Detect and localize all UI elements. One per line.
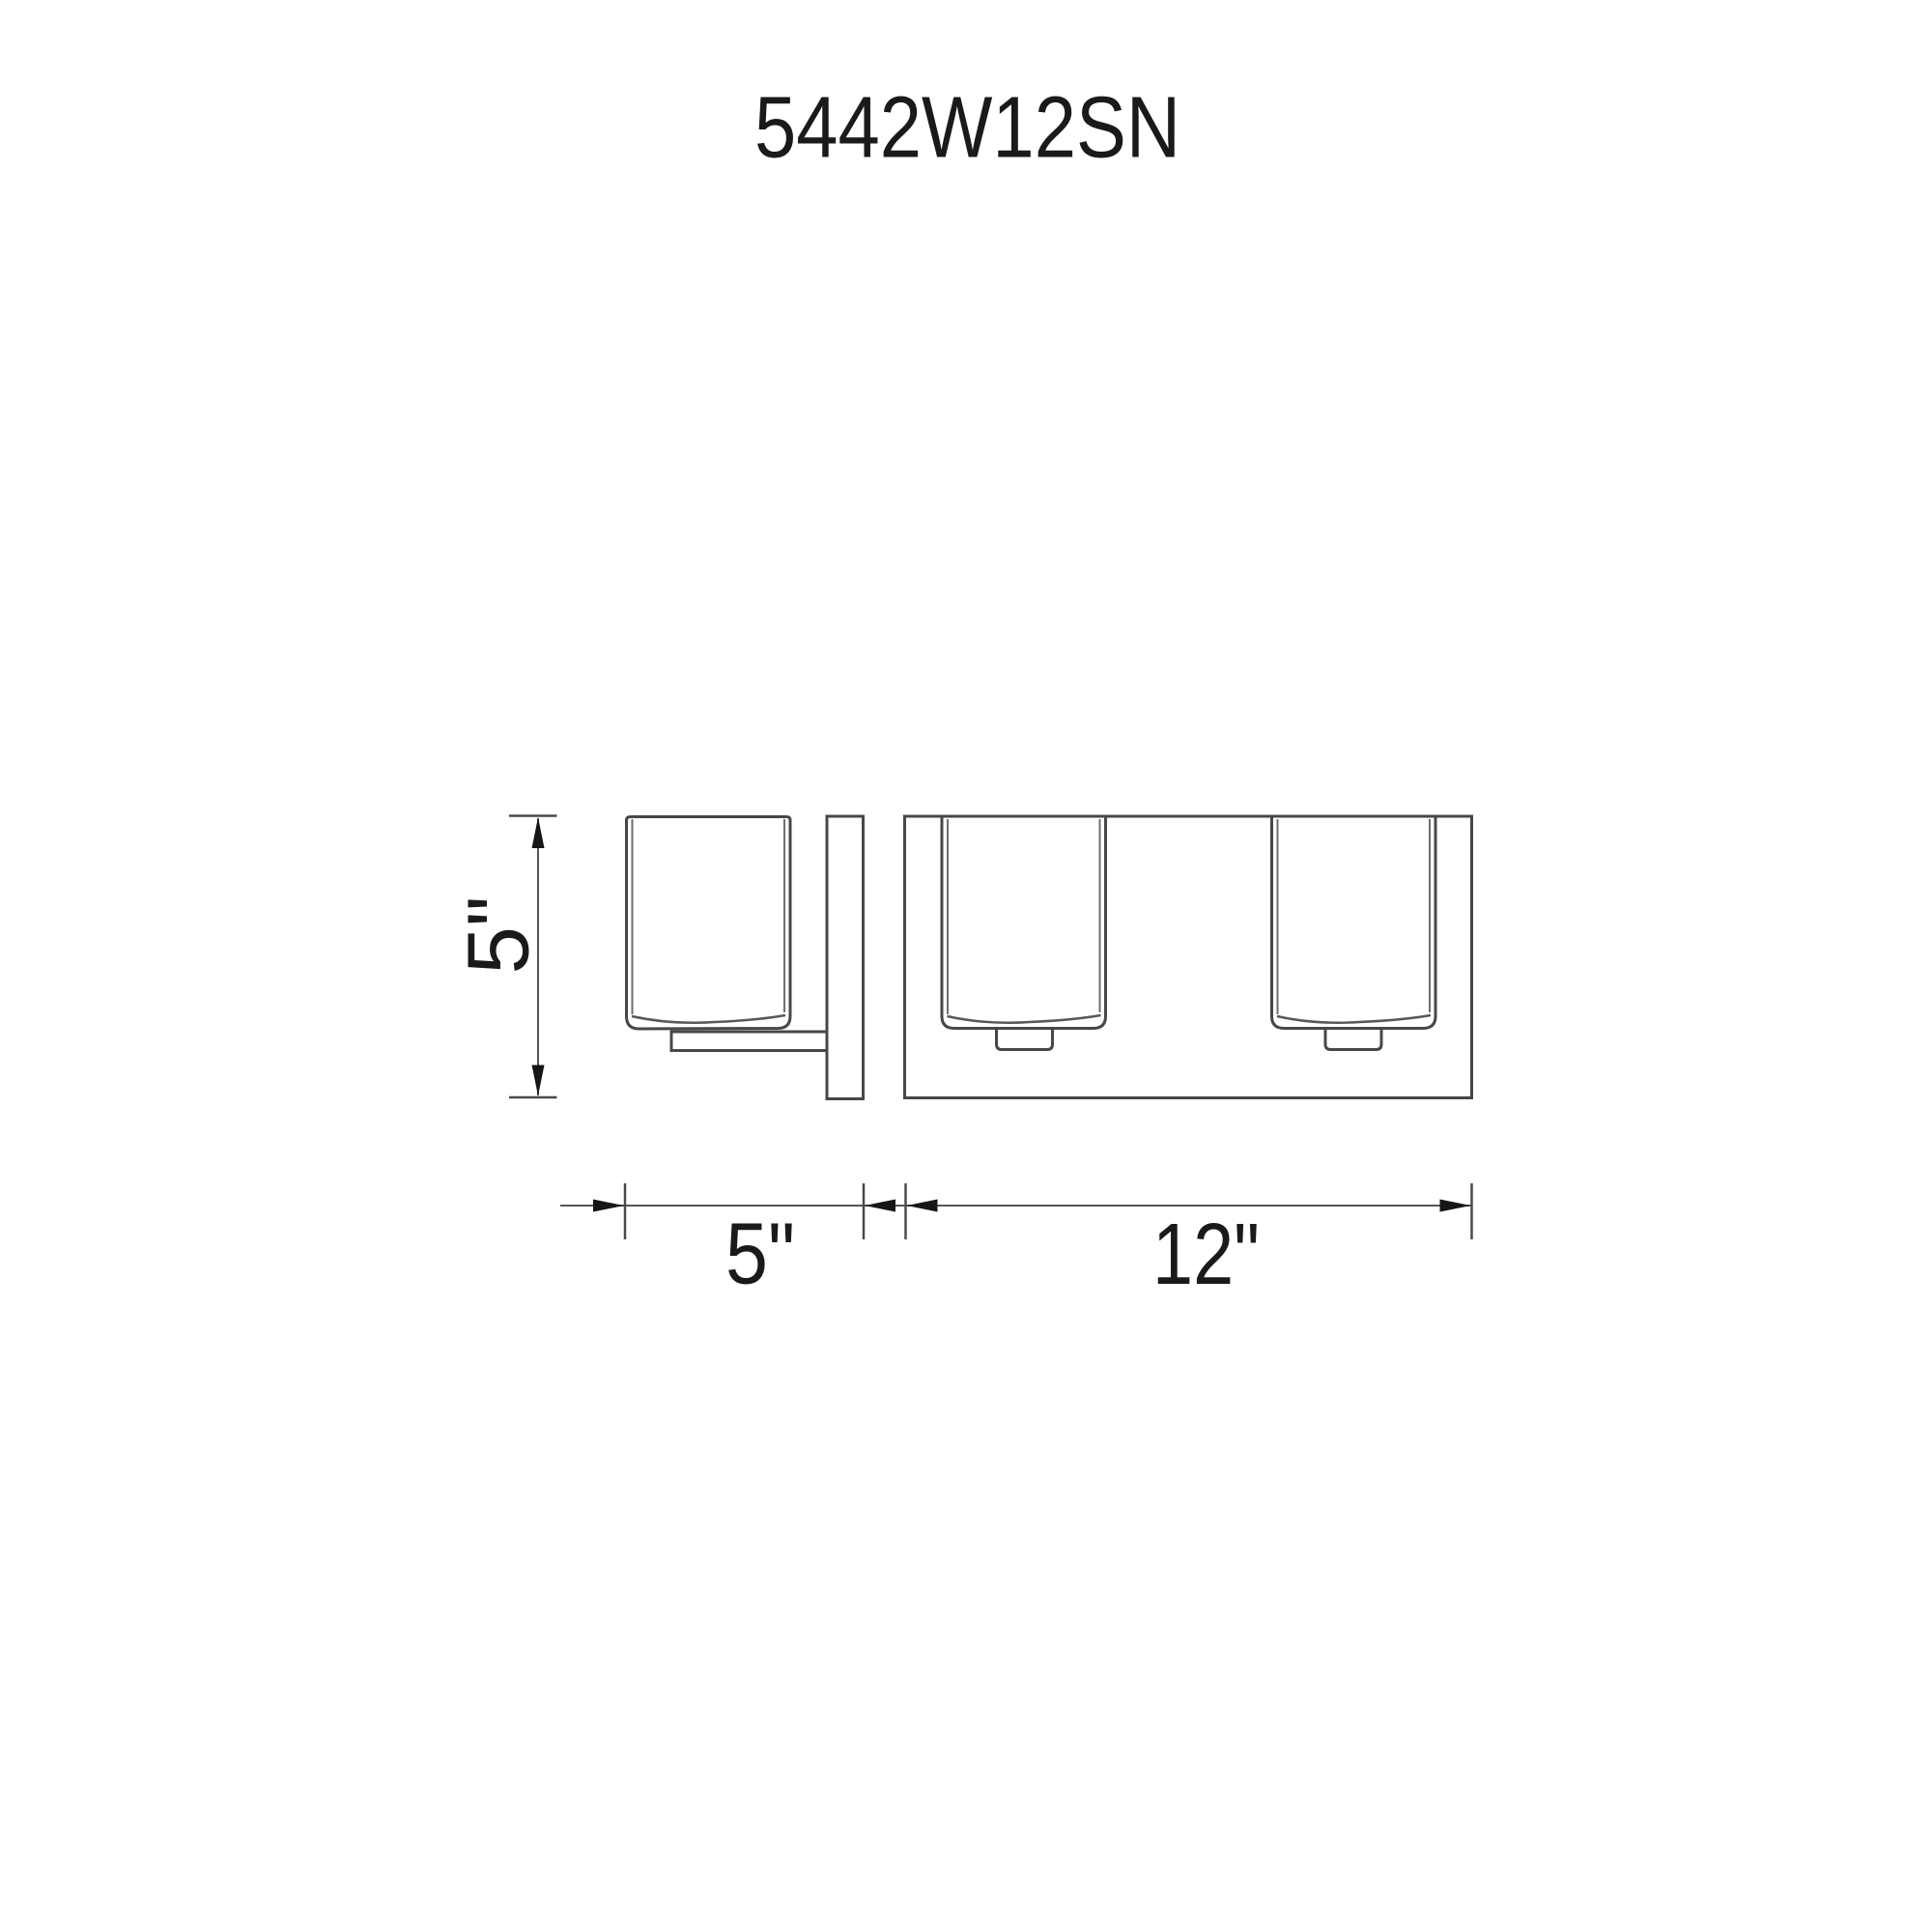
svg-text:12": 12" [1152,1207,1260,1303]
svg-text:5442W12SN: 5442W12SN [754,80,1180,177]
svg-text:5": 5" [451,896,548,975]
svg-text:5": 5" [725,1207,795,1303]
